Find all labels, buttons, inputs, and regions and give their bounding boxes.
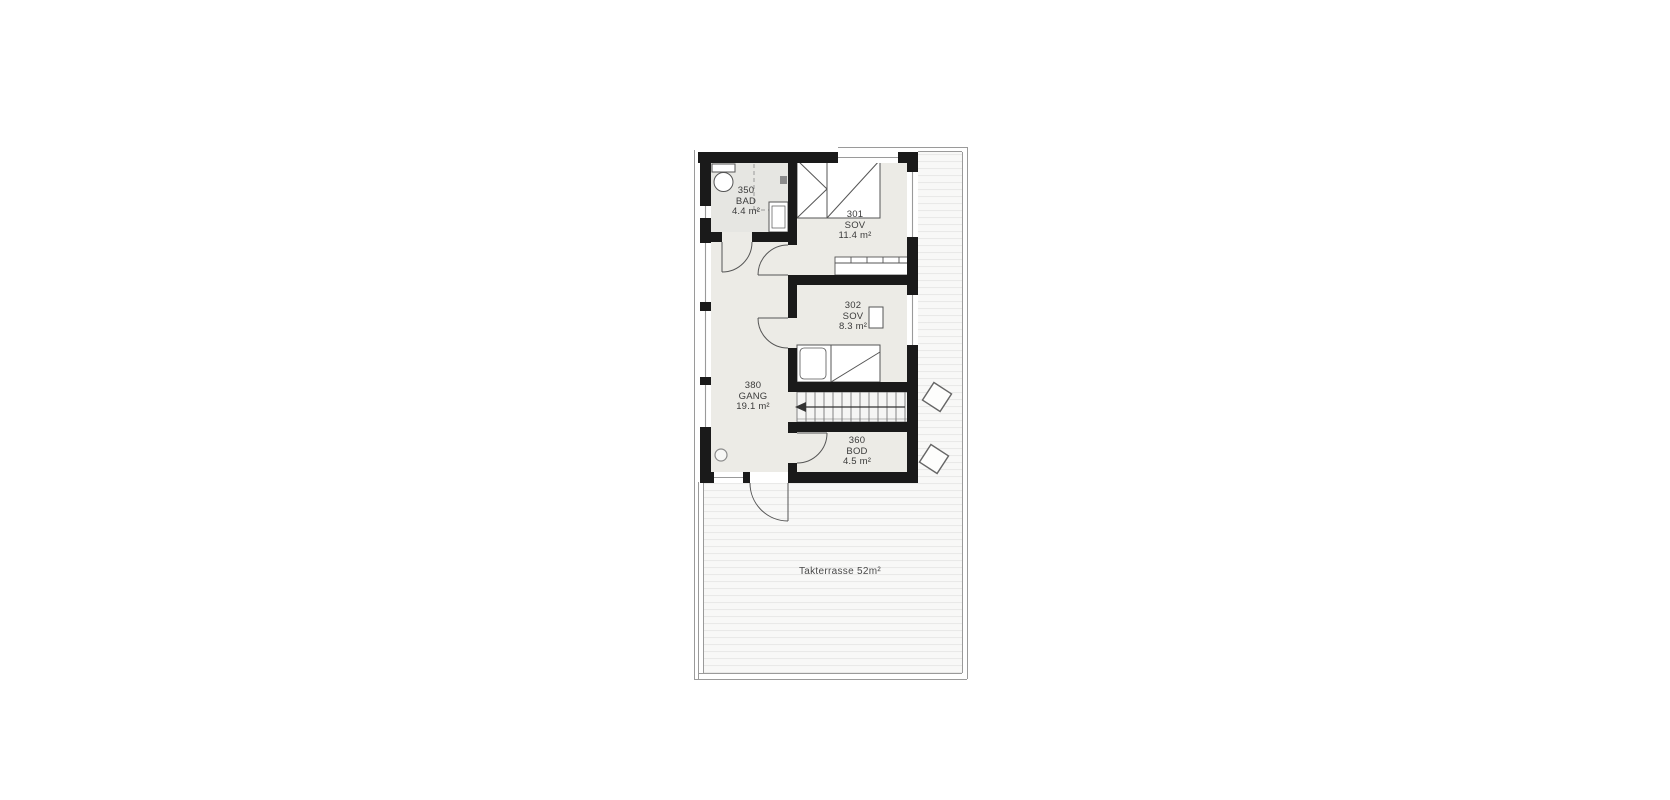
- room-label-bod: 360 BOD 4.5 m²: [812, 436, 902, 468]
- wall-vent-mark: [780, 176, 787, 184]
- room-area: 19.1 m²: [708, 402, 798, 413]
- floor-plan: 350 BAD 4.4 m² 301 SOV 11.4 m² 302 SOV 8…: [0, 0, 1670, 800]
- room-area: 4.4 m²: [701, 207, 791, 218]
- floor-drain-icon: [715, 449, 727, 461]
- room-number: 301: [810, 210, 900, 221]
- room-area: 8.3 m²: [808, 322, 898, 333]
- stairs: [795, 392, 913, 422]
- room-number: 380: [708, 381, 798, 392]
- room-label-gang: 380 GANG 19.1 m²: [708, 381, 798, 413]
- bed-302-icon: [797, 345, 880, 382]
- room-label-sov-302: 302 SOV 8.3 m²: [808, 301, 898, 333]
- room-label-bad: 350 BAD 4.4 m²: [701, 186, 791, 218]
- wardrobe-301-icon: [835, 257, 915, 275]
- room-number: 302: [808, 301, 898, 312]
- room-area: 4.5 m²: [812, 457, 902, 468]
- room-number: 350: [701, 186, 791, 197]
- floor-plan-drawing: [0, 0, 1670, 800]
- terrace-label: Takterrasse 52m²: [730, 566, 950, 577]
- room-label-sov-301: 301 SOV 11.4 m²: [810, 210, 900, 242]
- room-area: 11.4 m²: [810, 231, 900, 242]
- room-number: 360: [812, 436, 902, 447]
